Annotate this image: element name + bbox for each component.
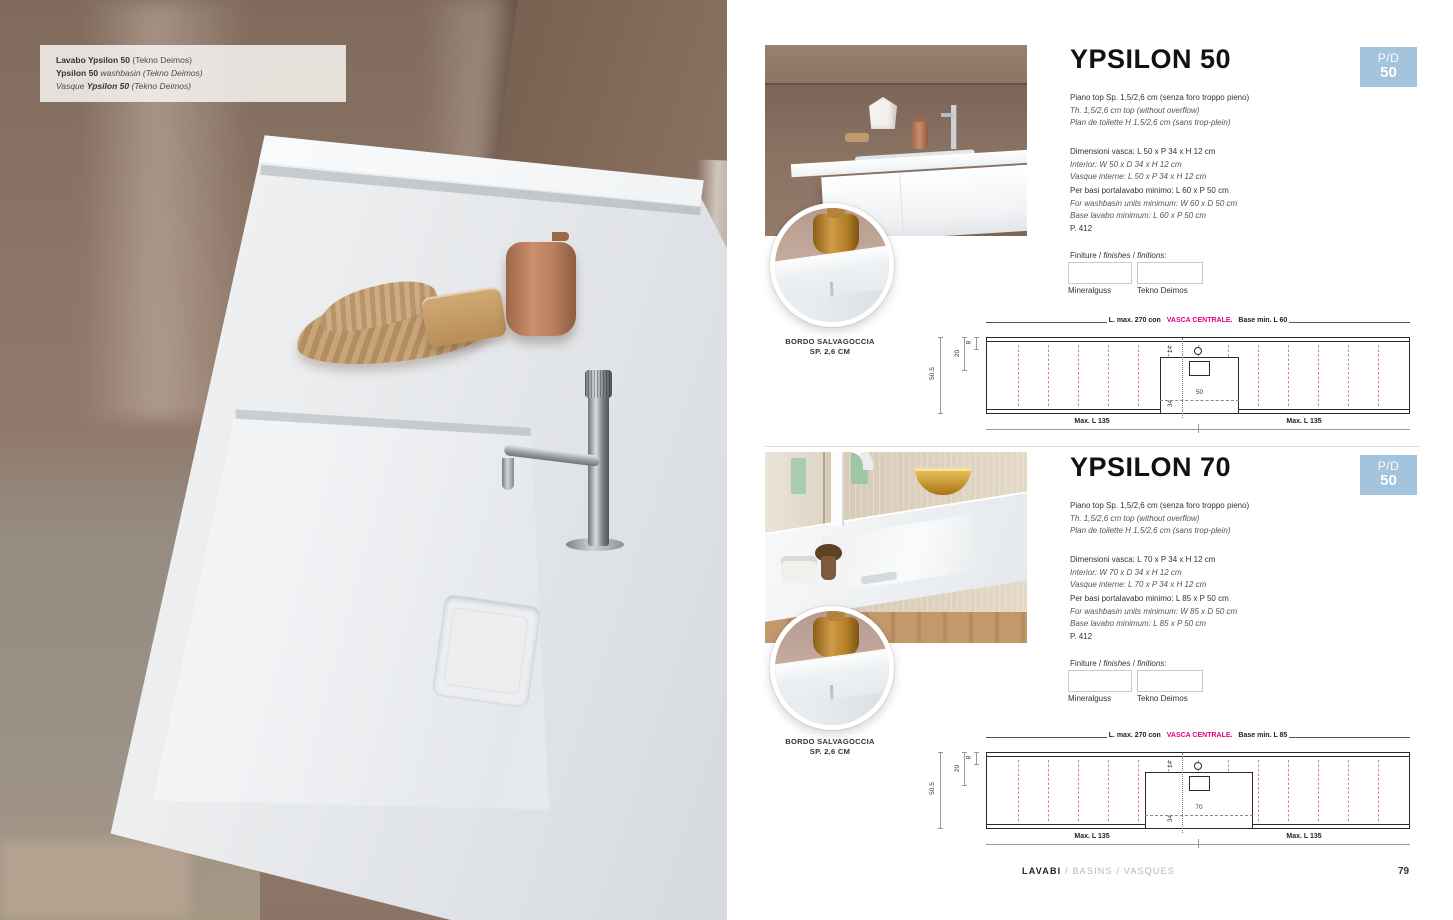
counter-outline: 14 34 50 — [986, 337, 1410, 414]
pd-badge: P/D 50 — [1360, 47, 1417, 87]
edge-line — [987, 756, 1409, 757]
caption-line-it: Lavabo Ypsilon 50 (Tekno Deimos) — [56, 54, 330, 67]
footer-category: LAVABI / BASINS / VASQUES — [1022, 866, 1175, 876]
pd-badge: P/D 50 — [1360, 455, 1417, 495]
dim-line-8 — [976, 752, 977, 765]
detail-inset-ypsilon70 — [770, 606, 894, 730]
swatch-label: Tekno Deimos — [1137, 694, 1188, 703]
faucet-hole — [1194, 762, 1202, 770]
faucet-knurl — [585, 370, 612, 398]
page-reference: P. 412 — [1070, 224, 1092, 233]
section-title-ypsilon50: YPSILON 50 — [1070, 44, 1231, 75]
caption-line-en: Ypsilon 50 washbasin (Tekno Deimos) — [56, 67, 330, 80]
base-unit-block: Per basi portalavabo minimo: L 85 x P 50… — [1070, 593, 1237, 631]
counter-outline: 14 34 70 — [986, 752, 1410, 829]
faucet-body — [588, 388, 609, 546]
inset-label-ypsilon50: BORDO SALVAGOCCIA SP. 2,6 CM — [765, 337, 895, 357]
inset-label-ypsilon70: BORDO SALVAGOCCIA SP. 2,6 CM — [765, 737, 895, 757]
shaving-brush-handle — [821, 556, 836, 580]
section-title-ypsilon70: YPSILON 70 — [1070, 452, 1231, 483]
dim-depth: 50.5 — [929, 367, 936, 380]
detail-inset-ypsilon50 — [770, 203, 894, 327]
decor-soap — [845, 133, 869, 142]
caption-line-fr: Vasque Ypsilon 50 (Tekno Deimos) — [56, 80, 330, 93]
max-left-label: Max. L 135 — [986, 833, 1198, 840]
basin-dimensions-block: Dimensioni vasca: L 50 x P 34 x H 12 cm … — [1070, 146, 1215, 184]
intro-block: Piano top Sp. 1,5/2,6 cm (senza foro tro… — [1070, 500, 1249, 538]
intro-block: Piano top Sp. 1,5/2,6 cm (senza foro tro… — [1070, 92, 1249, 130]
swatch-label: Mineralguss — [1068, 694, 1111, 703]
max-right-label: Max. L 135 — [1198, 418, 1410, 425]
dim-8: 8 — [965, 756, 972, 760]
soap-dispenser — [506, 242, 576, 336]
cream-jar — [781, 556, 817, 583]
swatch-label: Tekno Deimos — [1137, 286, 1188, 295]
amber-jar — [813, 214, 859, 254]
dimension-label-total: L. max. 270 con VASCA CENTRALE. Base min… — [986, 317, 1410, 324]
dim-depth: 50.5 — [929, 782, 936, 795]
dim-20: 20 — [954, 765, 961, 772]
soap-dispenser-spout — [552, 232, 569, 241]
dimension-tick — [1198, 424, 1199, 433]
section-divider — [765, 446, 1420, 447]
drain-outline — [1189, 776, 1210, 791]
finish-swatch-mineralguss — [1068, 262, 1132, 284]
basin-width-label: 50 — [1160, 389, 1239, 396]
product-photo-ypsilon50 — [765, 45, 1027, 236]
dim-line-8 — [976, 337, 977, 350]
dim-line-depth — [940, 337, 941, 414]
photo-caption: Lavabo Ypsilon 50 (Tekno Deimos) Ypsilon… — [40, 45, 346, 102]
dim-14: 14 — [1167, 761, 1174, 768]
dim-20: 20 — [954, 350, 961, 357]
page-reference: P. 412 — [1070, 632, 1092, 641]
floor — [0, 840, 190, 920]
swatch-label: Mineralguss — [1068, 286, 1111, 295]
amber-jar-lid — [827, 206, 845, 218]
finishes-label: Finiture / finishes / finitions: — [1070, 659, 1167, 668]
drain-outline — [1189, 361, 1210, 376]
center-axis — [1182, 753, 1183, 833]
dim-8: 8 — [965, 341, 972, 345]
center-axis — [1182, 338, 1183, 418]
photo-faucet — [951, 105, 956, 149]
page-number: 79 — [1398, 866, 1409, 877]
catalog-page: Lavabo Ypsilon 50 (Tekno Deimos) Ypsilon… — [0, 0, 1453, 920]
max-right-label: Max. L 135 — [1198, 833, 1410, 840]
dimension-label-total: L. max. 270 con VASCA CENTRALE. Base min… — [986, 732, 1410, 739]
dim-14: 14 — [1167, 346, 1174, 353]
drain-cover-inner — [443, 607, 529, 695]
decor-dispenser — [911, 121, 928, 149]
technical-drawing-ypsilon70: L. max. 270 con VASCA CENTRALE. Base min… — [930, 730, 1420, 855]
hero-photo: Lavabo Ypsilon 50 (Tekno Deimos) Ypsilon… — [0, 0, 727, 920]
finish-swatch-tekno-deimos — [1137, 262, 1203, 284]
edge-line — [987, 341, 1409, 342]
finishes-label: Finiture / finishes / finitions: — [1070, 251, 1167, 260]
basin-width-label: 70 — [1145, 804, 1253, 811]
finish-swatch-tekno-deimos — [1137, 670, 1203, 692]
dimension-tick — [1198, 839, 1199, 848]
basin-width-line — [1160, 400, 1239, 401]
finish-swatch-mineralguss — [1068, 670, 1132, 692]
green-glass — [791, 458, 806, 494]
amber-jar — [813, 617, 859, 657]
photo-mirror — [765, 45, 1027, 85]
dim-line-depth — [940, 752, 941, 829]
technical-drawing-ypsilon50: L. max. 270 con VASCA CENTRALE. Base min… — [930, 315, 1420, 440]
amber-jar-lid — [827, 609, 845, 621]
base-unit-block: Per basi portalavabo minimo: L 60 x P 50… — [1070, 185, 1237, 223]
faucet-spout-tip — [502, 458, 514, 490]
white-faucet-spout — [831, 452, 873, 470]
basin-width-line — [1145, 815, 1253, 816]
faucet-hole — [1194, 347, 1202, 355]
max-left-label: Max. L 135 — [986, 418, 1198, 425]
basin-dimensions-block: Dimensioni vasca: L 70 x P 34 x H 12 cm … — [1070, 554, 1215, 592]
